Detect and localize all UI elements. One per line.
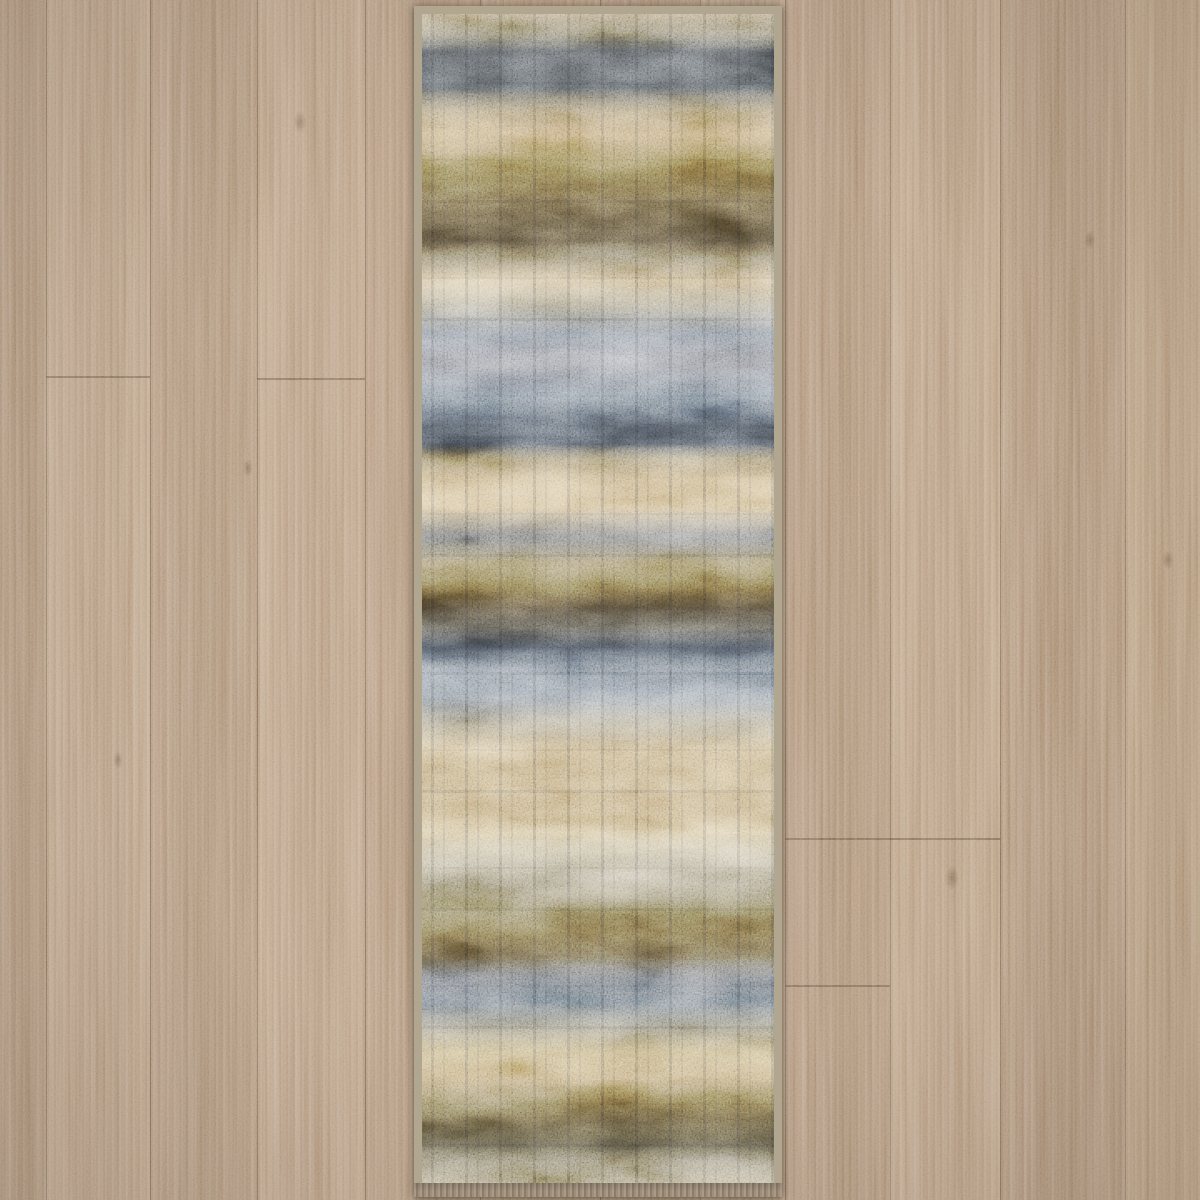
runner-rug [414, 6, 782, 1197]
rug-vertical-dashes [422, 14, 774, 1183]
product-photo: Overhead product photo of an abstract di… [0, 0, 1200, 1200]
rug-pattern [422, 14, 774, 1183]
rug-end-binding [414, 1183, 782, 1197]
